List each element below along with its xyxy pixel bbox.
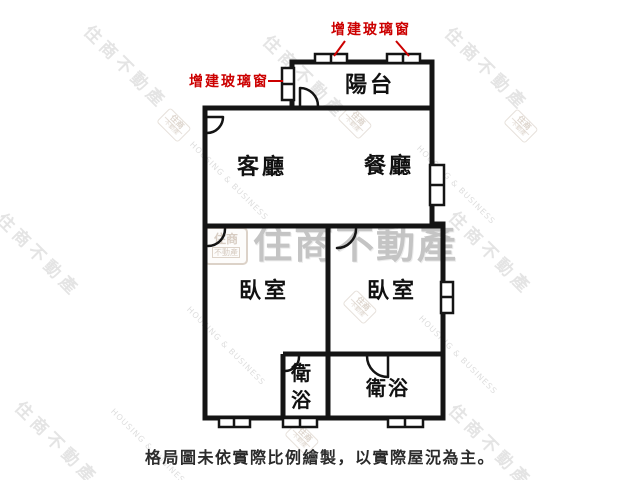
floorplan-page: 住商不動產 住商不動產 住商不動產 住商不動產 住商不動產 住商不動產 住商不動… xyxy=(0,0,640,480)
room-label-bathroom-left: 衛浴 xyxy=(290,360,312,414)
room-label-bedroom-left: 臥室 xyxy=(239,281,289,303)
walls xyxy=(205,62,443,418)
room-label-living-room: 客廳 xyxy=(237,157,287,179)
balcony-door-icon xyxy=(300,88,318,106)
bath-right-door-icon xyxy=(367,356,388,377)
bedroom-right-door-icon xyxy=(337,229,356,248)
floorplan-drawing xyxy=(0,0,640,480)
bedroom-left-door-icon xyxy=(208,229,225,246)
doors xyxy=(207,88,388,377)
entry-door-icon xyxy=(207,117,223,133)
annotation-added-glass-window-left: 增建玻璃窗 xyxy=(189,71,269,91)
disclaimer-caption: 格局圖未依實際比例繪製，以實際屋況為主。 xyxy=(0,444,640,468)
room-label-bedroom-right: 臥室 xyxy=(367,281,417,303)
room-label-balcony: 陽台 xyxy=(345,75,395,97)
room-label-bathroom-right: 衛浴 xyxy=(366,378,410,398)
annotation-added-glass-window-top: 增建玻璃窗 xyxy=(331,19,411,39)
room-label-dining-room: 餐廳 xyxy=(364,156,414,178)
